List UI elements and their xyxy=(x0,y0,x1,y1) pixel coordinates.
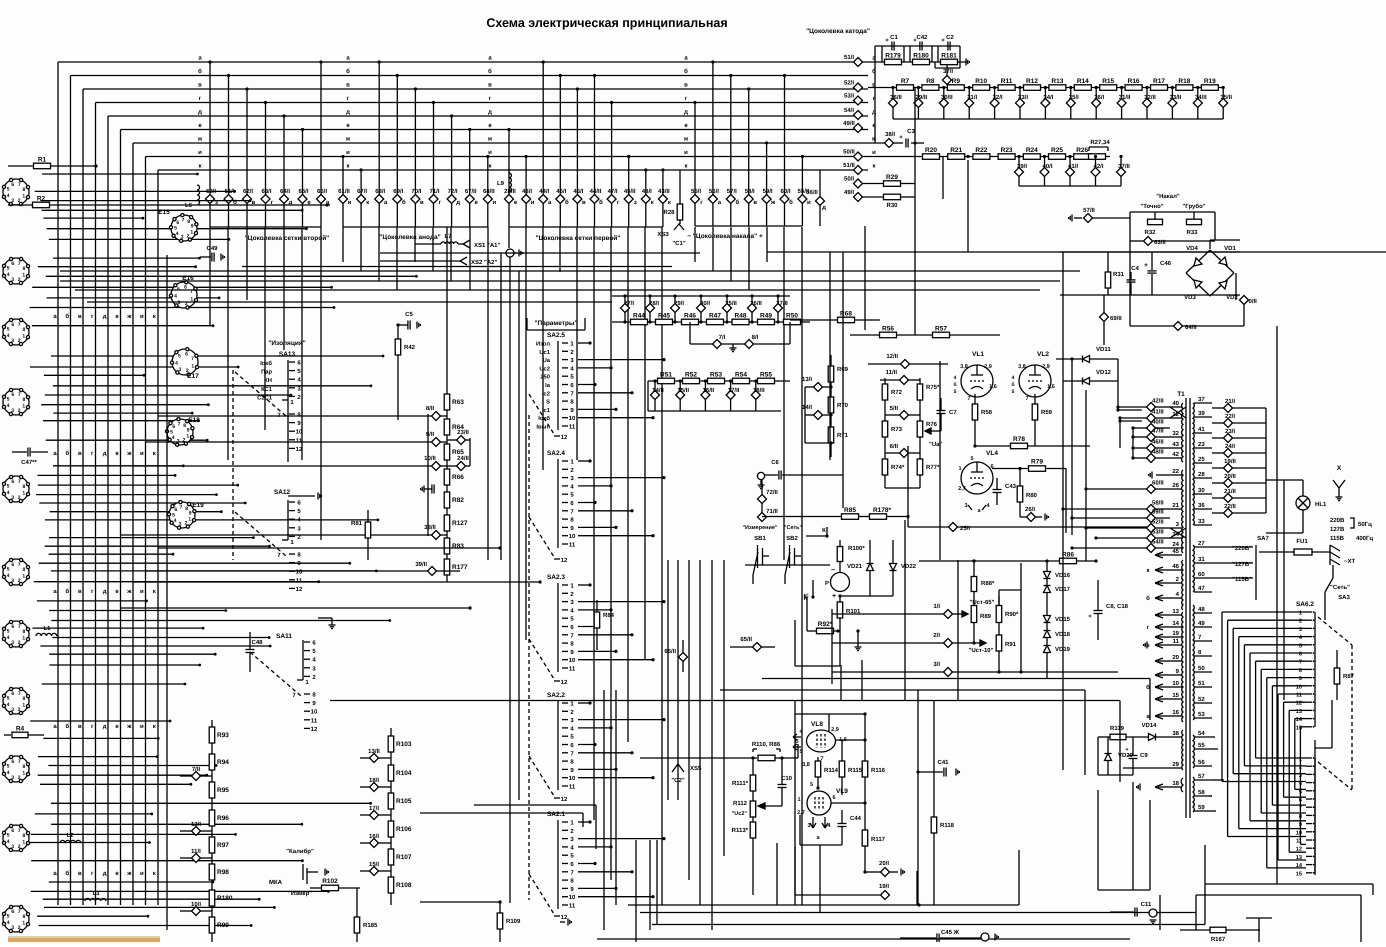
svg-text:10: 10 xyxy=(569,894,576,901)
svg-text:R89: R89 xyxy=(980,613,992,620)
svg-text:20/II: 20/II xyxy=(1224,473,1236,480)
svg-text:R104: R104 xyxy=(396,770,412,777)
svg-text:8: 8 xyxy=(23,187,26,193)
svg-text:R111*: R111* xyxy=(732,780,749,787)
svg-text:9: 9 xyxy=(189,511,192,517)
svg-text:R94: R94 xyxy=(217,759,229,766)
svg-text:С11: С11 xyxy=(1141,901,1152,908)
svg-text:1: 1 xyxy=(22,403,25,409)
svg-text:29: 29 xyxy=(1172,761,1179,768)
svg-text:R95: R95 xyxy=(217,787,229,794)
svg-text:6: 6 xyxy=(185,352,188,358)
svg-text:д: д xyxy=(822,205,826,211)
svg-text:R82: R82 xyxy=(452,497,464,504)
svg-text:"Точно": "Точно" xyxy=(1140,203,1163,210)
svg-text:32/I: 32/I xyxy=(993,94,1003,101)
svg-text:64/I: 64/I xyxy=(280,188,290,195)
svg-text:1: 1 xyxy=(186,433,189,439)
svg-text:и: и xyxy=(684,150,688,156)
svg-text:15: 15 xyxy=(1296,871,1302,877)
svg-text:18/II: 18/II xyxy=(753,387,765,394)
svg-text:к: к xyxy=(153,871,156,877)
svg-text:71/I: 71/I xyxy=(429,188,439,195)
svg-text:16/II: 16/II xyxy=(703,387,715,394)
svg-text:11/II: 11/II xyxy=(886,369,898,376)
svg-text:34/I: 34/I xyxy=(1043,94,1053,101)
svg-text:3: 3 xyxy=(179,521,182,527)
svg-text:в: в xyxy=(78,871,82,877)
svg-text:Пар: Пар xyxy=(261,370,272,376)
svg-text:3/I: 3/I xyxy=(933,661,940,668)
svg-text:б: б xyxy=(66,313,70,320)
svg-text:SA6.2: SA6.2 xyxy=(1296,601,1314,608)
svg-text:R8: R8 xyxy=(926,78,935,85)
svg-text:7: 7 xyxy=(178,422,181,428)
svg-text:1,6: 1,6 xyxy=(989,384,997,390)
svg-text:39: 39 xyxy=(1198,410,1205,417)
svg-text:R117: R117 xyxy=(871,836,886,843)
svg-text:R48: R48 xyxy=(735,313,747,320)
svg-text:+: + xyxy=(941,38,945,44)
svg-text:3: 3 xyxy=(178,300,181,306)
svg-text:д: д xyxy=(103,871,107,877)
svg-text:24/II: 24/II xyxy=(457,455,469,462)
svg-text:Uс1: Uс1 xyxy=(539,350,550,356)
svg-text:КС1: КС1 xyxy=(261,386,273,393)
svg-text:46/I: 46/I xyxy=(573,188,583,195)
svg-text:д: д xyxy=(103,451,107,457)
svg-text:R118: R118 xyxy=(940,822,955,829)
svg-text:R45: R45 xyxy=(658,313,670,320)
svg-text:SA7: SA7 xyxy=(1257,535,1269,542)
svg-text:65/II: 65/II xyxy=(740,636,752,643)
svg-text:ж: ж xyxy=(871,137,877,143)
svg-text:47: 47 xyxy=(1198,585,1205,592)
svg-text:д: д xyxy=(103,589,107,595)
svg-text:11: 11 xyxy=(296,577,303,584)
svg-text:6: 6 xyxy=(174,507,177,513)
svg-text:58/I: 58/I xyxy=(745,188,755,195)
svg-text:37/II: 37/II xyxy=(1118,163,1130,170)
svg-text:5: 5 xyxy=(1012,389,1015,395)
svg-text:"220В": "220В" xyxy=(1232,545,1252,552)
svg-text:L3: L3 xyxy=(92,890,100,897)
svg-text:19/I: 19/I xyxy=(879,883,889,890)
svg-text:12: 12 xyxy=(561,557,568,564)
svg-text:R83: R83 xyxy=(452,543,464,550)
svg-text:"Измерение": "Измерение" xyxy=(742,525,777,531)
svg-text:д: д xyxy=(346,110,350,116)
svg-text:5: 5 xyxy=(7,327,10,333)
svg-text:R180: R180 xyxy=(217,895,233,902)
svg-text:Iс2: Iс2 xyxy=(542,390,550,397)
svg-text:61/II: 61/II xyxy=(338,188,350,195)
svg-text:4: 4 xyxy=(7,333,10,339)
svg-text:VD3: VD3 xyxy=(1184,294,1196,301)
svg-text:SA13: SA13 xyxy=(279,351,296,358)
svg-text:Е19: Е19 xyxy=(192,502,204,509)
svg-text:к: к xyxy=(668,200,671,206)
svg-text:20: 20 xyxy=(1172,654,1179,661)
svg-text:49/II: 49/II xyxy=(843,120,855,127)
svg-text:22/II: 22/II xyxy=(1224,503,1236,510)
svg-text:4: 4 xyxy=(172,435,175,441)
svg-text:69/I: 69/I xyxy=(393,188,403,195)
svg-text:VL1: VL1 xyxy=(972,351,984,358)
svg-text:и: и xyxy=(140,451,144,457)
svg-text:10: 10 xyxy=(569,657,576,664)
svg-text:R53: R53 xyxy=(710,372,722,379)
svg-text:2: 2 xyxy=(18,844,21,850)
svg-text:8/II: 8/II xyxy=(426,405,435,412)
svg-text:R119: R119 xyxy=(1110,725,1125,732)
svg-text:R25: R25 xyxy=(1051,147,1063,154)
svg-text:R13: R13 xyxy=(1051,78,1063,85)
svg-text:38/II: 38/II xyxy=(424,524,436,531)
svg-text:"Цоколевка сетки первой": "Цоколевка сетки первой" xyxy=(535,235,620,242)
svg-text:4: 4 xyxy=(7,403,10,409)
svg-text:29/II: 29/II xyxy=(916,94,928,101)
svg-text:45/I: 45/I xyxy=(556,188,566,195)
svg-text:65/I: 65/I xyxy=(298,188,308,195)
svg-text:ж: ж xyxy=(197,137,203,143)
svg-text:R116: R116 xyxy=(871,767,886,774)
svg-text:Схема электрическая принципиал: Схема электрическая принципиальная xyxy=(486,16,727,30)
svg-text:R102: R102 xyxy=(322,878,338,885)
svg-text:47/I: 47/I xyxy=(608,188,618,195)
svg-text:R103: R103 xyxy=(396,741,412,748)
svg-text:SB1: SB1 xyxy=(754,535,766,542)
svg-text:б: б xyxy=(735,199,739,206)
svg-text:2,7: 2,7 xyxy=(797,810,805,816)
svg-text:6: 6 xyxy=(11,322,14,328)
svg-text:VD22: VD22 xyxy=(901,563,917,570)
svg-text:R87: R87 xyxy=(1343,673,1355,680)
svg-text:и: и xyxy=(807,200,811,206)
svg-text:R12: R12 xyxy=(1026,78,1038,85)
svg-text:1: 1 xyxy=(190,229,193,235)
svg-text:3: 3 xyxy=(11,925,14,931)
svg-text:R51: R51 xyxy=(660,372,672,379)
svg-text:д: д xyxy=(103,724,107,730)
svg-text:R77*: R77* xyxy=(926,464,940,471)
svg-text:Р: Р xyxy=(825,580,829,587)
svg-text:R180: R180 xyxy=(913,53,929,60)
svg-text:б: б xyxy=(66,588,70,595)
svg-text:R24: R24 xyxy=(1026,147,1038,154)
svg-text:к: к xyxy=(651,200,654,206)
svg-text:МКА: МКА xyxy=(269,879,283,886)
svg-text:"Сеть": "Сеть" xyxy=(784,525,803,531)
svg-text:8: 8 xyxy=(23,696,26,702)
svg-text:R185: R185 xyxy=(363,922,378,929)
svg-text:C42: C42 xyxy=(916,34,928,41)
svg-text:16: 16 xyxy=(1172,709,1179,716)
svg-text:6: 6 xyxy=(11,562,14,568)
svg-text:Uс2: Uс2 xyxy=(539,365,550,372)
svg-text:54: 54 xyxy=(1198,730,1205,737)
svg-text:5: 5 xyxy=(174,226,177,232)
svg-text:"Изоляция": "Изоляция" xyxy=(268,340,305,347)
svg-text:60/II: 60/II xyxy=(1152,480,1164,487)
svg-text:д: д xyxy=(488,110,492,116)
svg-text:30/II: 30/II xyxy=(941,94,953,101)
svg-text:ж: ж xyxy=(126,314,132,320)
svg-text:и: и xyxy=(140,871,144,877)
svg-text:VD11: VD11 xyxy=(1096,346,1111,353)
svg-text:Изол: Изол xyxy=(536,342,550,348)
svg-text:8: 8 xyxy=(23,567,26,573)
svg-text:46/II: 46/II xyxy=(1152,439,1164,446)
svg-text:C49: C49 xyxy=(206,245,218,252)
svg-text:Iохб: Iохб xyxy=(260,360,272,367)
svg-text:SA12: SA12 xyxy=(274,489,291,496)
svg-text:ж: ж xyxy=(683,137,689,143)
svg-text:12: 12 xyxy=(561,796,568,803)
svg-text:SA2.1: SA2.1 xyxy=(547,811,565,818)
svg-text:7: 7 xyxy=(18,828,21,834)
svg-text:R97: R97 xyxy=(217,842,229,849)
svg-text:11: 11 xyxy=(296,437,303,444)
svg-text:4: 4 xyxy=(7,920,10,926)
svg-text:20/I: 20/I xyxy=(879,860,889,867)
svg-text:R167: R167 xyxy=(1211,936,1226,942)
svg-text:57/II: 57/II xyxy=(1083,207,1095,214)
svg-text:VL8: VL8 xyxy=(811,721,823,728)
svg-text:б: б xyxy=(66,723,70,730)
svg-text:2: 2 xyxy=(183,438,186,444)
svg-text:5: 5 xyxy=(7,696,10,702)
svg-text:и: и xyxy=(140,724,144,730)
svg-text:R2: R2 xyxy=(37,196,46,203)
svg-text:13/I: 13/I xyxy=(802,376,812,383)
svg-text:34/II: 34/II xyxy=(1195,94,1207,101)
svg-text:+: + xyxy=(832,593,836,600)
svg-text:R86: R86 xyxy=(1062,552,1074,559)
svg-text:Iс1: Iс1 xyxy=(542,408,551,414)
svg-text:33: 33 xyxy=(1198,518,1205,525)
svg-text:и: и xyxy=(198,150,202,156)
svg-text:11: 11 xyxy=(1173,638,1180,645)
svg-text:SB2: SB2 xyxy=(786,535,798,542)
svg-text:6: 6 xyxy=(11,909,14,915)
svg-text:R33: R33 xyxy=(1186,229,1198,236)
svg-text:к: к xyxy=(684,164,687,170)
svg-text:R23: R23 xyxy=(1001,147,1013,154)
svg-text:49: 49 xyxy=(1198,620,1205,627)
svg-text:21: 21 xyxy=(1172,502,1179,509)
svg-text:31: 31 xyxy=(1198,556,1205,563)
svg-text:б: б xyxy=(1146,595,1150,602)
svg-text:3: 3 xyxy=(11,408,14,414)
svg-text:R31: R31 xyxy=(1113,271,1125,278)
svg-text:4: 4 xyxy=(7,770,10,776)
svg-text:к: к xyxy=(153,314,156,320)
svg-text:4: 4 xyxy=(7,490,10,496)
svg-text:R52: R52 xyxy=(685,372,697,379)
svg-text:C7: C7 xyxy=(949,409,957,416)
svg-text:8: 8 xyxy=(23,397,26,403)
svg-text:R112: R112 xyxy=(733,800,748,807)
svg-text:4: 4 xyxy=(7,702,10,708)
svg-text:2: 2 xyxy=(18,775,21,781)
svg-text:7: 7 xyxy=(180,505,183,511)
svg-text:в: в xyxy=(78,314,82,320)
svg-text:2: 2 xyxy=(185,521,188,527)
svg-text:51: 51 xyxy=(1198,680,1205,687)
svg-text:С10: С10 xyxy=(781,775,793,782)
svg-text:"Грубо": "Грубо" xyxy=(1182,203,1205,210)
svg-text:42/I: 42/I xyxy=(1093,163,1103,170)
svg-text:R17: R17 xyxy=(1153,78,1165,85)
svg-text:45/II: 45/II xyxy=(624,188,636,195)
svg-text:3: 3 xyxy=(964,503,967,509)
svg-text:и: и xyxy=(140,589,144,595)
svg-text:1: 1 xyxy=(22,490,25,496)
svg-text:12: 12 xyxy=(311,726,318,733)
svg-text:XS1 "А1": XS1 "А1" xyxy=(474,242,501,249)
svg-text:Е18: Е18 xyxy=(188,417,200,424)
svg-text:220В: 220В xyxy=(1330,517,1345,524)
svg-text:51/I: 51/I xyxy=(844,54,854,61)
svg-text:2: 2 xyxy=(18,925,21,931)
svg-text:7: 7 xyxy=(18,562,21,568)
svg-text:R56: R56 xyxy=(882,326,894,333)
svg-text:ж: ж xyxy=(126,451,132,457)
svg-text:43/I: 43/I xyxy=(522,188,532,195)
svg-text:2: 2 xyxy=(18,707,21,713)
svg-text:ж: ж xyxy=(126,589,132,595)
svg-text:ж: ж xyxy=(345,137,351,143)
svg-text:66/II: 66/II xyxy=(664,648,676,655)
svg-text:+: + xyxy=(885,38,889,44)
svg-text:5: 5 xyxy=(7,914,10,920)
svg-text:R100*: R100* xyxy=(848,545,865,552)
svg-text:2,9: 2,9 xyxy=(1042,364,1050,370)
svg-text:"Параметры": "Параметры" xyxy=(534,320,577,327)
svg-text:R181: R181 xyxy=(941,53,957,60)
svg-text:14/II: 14/II xyxy=(652,387,664,394)
svg-text:R84: R84 xyxy=(603,612,615,619)
svg-text:71/II: 71/II xyxy=(766,508,778,515)
svg-text:58: 58 xyxy=(1198,789,1205,796)
svg-text:б: б xyxy=(684,68,688,75)
svg-text:R30: R30 xyxy=(886,202,898,209)
svg-text:58/II: 58/II xyxy=(1152,500,1164,507)
svg-text:1: 1 xyxy=(22,635,25,641)
svg-text:в: в xyxy=(684,83,688,89)
svg-text:R9: R9 xyxy=(952,78,961,85)
svg-text:12: 12 xyxy=(296,586,303,593)
svg-text:КН: КН xyxy=(264,378,272,384)
svg-text:R88*: R88* xyxy=(981,580,995,587)
svg-text:R7: R7 xyxy=(901,78,910,85)
svg-text:1: 1 xyxy=(22,193,25,199)
svg-text:R63: R63 xyxy=(452,399,464,406)
svg-text:17/II: 17/II xyxy=(728,387,740,394)
svg-text:2,9: 2,9 xyxy=(984,364,992,370)
svg-text:56: 56 xyxy=(1198,759,1205,766)
svg-text:10: 10 xyxy=(569,775,576,782)
svg-text:в: в xyxy=(488,83,492,89)
svg-text:5: 5 xyxy=(7,397,10,403)
svg-text:57: 57 xyxy=(1198,773,1205,780)
svg-text:C5: C5 xyxy=(405,311,413,318)
svg-text:12/II: 12/II xyxy=(886,353,898,360)
svg-text:"Цоколевка катода": "Цоколевка катода" xyxy=(806,28,870,35)
svg-text:31/I: 31/I xyxy=(967,94,977,101)
svg-text:7: 7 xyxy=(1025,396,1028,402)
svg-text:69/II: 69/II xyxy=(1110,315,1122,322)
svg-text:67/I: 67/I xyxy=(357,188,367,195)
svg-text:1: 1 xyxy=(22,573,25,579)
svg-text:3: 3 xyxy=(11,640,14,646)
svg-text:4: 4 xyxy=(176,231,179,237)
svg-text:С8, С18: С8, С18 xyxy=(1106,603,1129,610)
svg-text:50Гц: 50Гц xyxy=(1358,521,1372,528)
svg-text:8/I: 8/I xyxy=(752,334,759,341)
svg-text:70/I: 70/I xyxy=(411,188,421,195)
svg-text:и: и xyxy=(492,200,496,206)
svg-text:23/I: 23/I xyxy=(1225,428,1235,435)
svg-text:з: з xyxy=(634,200,637,206)
svg-text:1: 1 xyxy=(22,272,25,278)
svg-text:60/I: 60/I xyxy=(780,188,790,195)
svg-text:66/I: 66/I xyxy=(317,188,327,195)
svg-text:6: 6 xyxy=(11,624,14,630)
svg-text:R85: R85 xyxy=(844,507,856,514)
svg-text:к: к xyxy=(366,200,369,206)
svg-text:57/I: 57/I xyxy=(727,188,737,195)
svg-text:2/I: 2/I xyxy=(933,632,940,639)
svg-text:"Сеть": "Сеть" xyxy=(1330,584,1350,591)
svg-text:13: 13 xyxy=(1172,608,1179,615)
svg-text:6: 6 xyxy=(11,759,14,765)
svg-text:SA2.4: SA2.4 xyxy=(547,450,565,457)
svg-text:2: 2 xyxy=(18,198,21,204)
svg-text:к: к xyxy=(346,164,349,170)
svg-text:26: 26 xyxy=(1172,482,1179,489)
svg-text:1: 1 xyxy=(22,920,25,926)
svg-text:38/I: 38/I xyxy=(885,131,895,138)
svg-text:1: 1 xyxy=(22,333,25,339)
svg-text:R80: R80 xyxy=(1026,492,1038,499)
svg-text:R47: R47 xyxy=(709,313,721,320)
svg-text:к: к xyxy=(872,164,875,170)
svg-text:115В: 115В xyxy=(1330,535,1345,542)
svg-text:3: 3 xyxy=(177,438,180,444)
svg-text:68/II: 68/II xyxy=(483,188,495,195)
svg-text:7: 7 xyxy=(18,182,21,188)
svg-text:4: 4 xyxy=(7,193,10,199)
svg-text:4: 4 xyxy=(954,375,957,381)
svg-text:2: 2 xyxy=(18,277,21,283)
svg-text:49/I: 49/I xyxy=(844,189,854,196)
svg-text:C2: C2 xyxy=(946,34,954,41)
svg-text:SA11: SA11 xyxy=(276,633,292,640)
svg-text:31/II: 31/II xyxy=(1119,94,1131,101)
svg-text:5: 5 xyxy=(970,456,973,462)
svg-text:SA3: SA3 xyxy=(1338,594,1350,601)
svg-text:Е17: Е17 xyxy=(187,373,199,380)
svg-text:R58: R58 xyxy=(981,409,993,416)
svg-text:26/I: 26/I xyxy=(1025,506,1035,513)
svg-text:48/II: 48/II xyxy=(1152,449,1164,456)
svg-text:R1: R1 xyxy=(38,157,47,164)
svg-text:63/I: 63/I xyxy=(261,188,271,195)
svg-text:VL4: VL4 xyxy=(986,450,998,457)
svg-text:д: д xyxy=(198,110,202,116)
